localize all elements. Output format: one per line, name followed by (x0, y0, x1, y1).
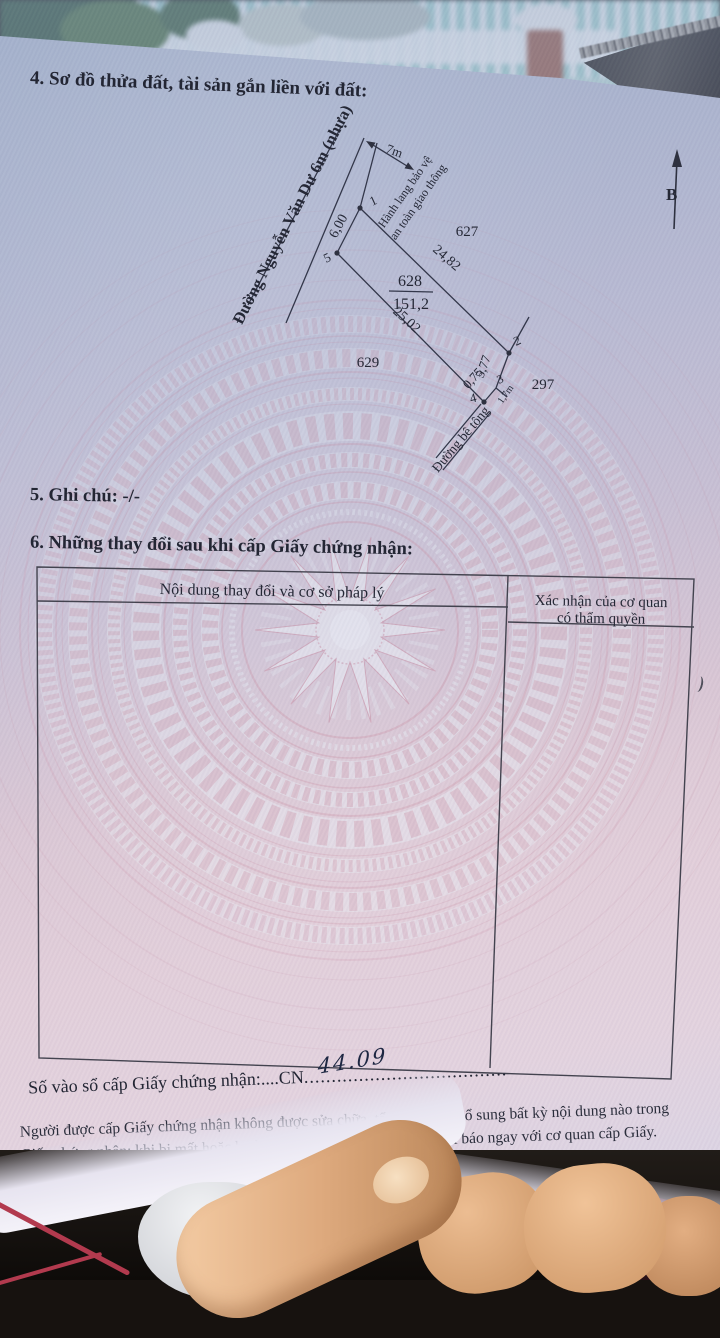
parcel-629: 629 (357, 355, 380, 371)
parcel-area: 151,2 (393, 296, 429, 313)
north-label: B (666, 185, 677, 204)
parcel-297: 297 (532, 377, 555, 393)
section5-note: 5. Ghi chú: -/- (30, 485, 140, 508)
road-concrete-label: Đường bê tông (429, 403, 493, 475)
table-col1-header: Nội dung thay đổi và cơ sở pháp lý (160, 581, 385, 602)
vertex-3: 3 (494, 371, 505, 386)
cadastral-diagram: B Đường Nguyễn Văn Dư 6m (nhựa) Hành lan… (0, 95, 720, 515)
vertex-1: 1 (367, 192, 379, 208)
edge-front-dim: 6,00 (327, 212, 352, 241)
vertex-4: 4 (468, 390, 479, 406)
changes-table: Nội dung thay đổi và cơ sở pháp lý Xác n… (0, 555, 720, 1095)
table-borders (37, 567, 694, 1079)
parcel-number: 628 (398, 273, 422, 290)
registry-code: CN (278, 1067, 304, 1088)
parcel-627: 627 (456, 224, 479, 240)
vertex-5: 5 (321, 249, 333, 265)
table-col2-header-line1: Xác nhận của cơ quan (535, 593, 669, 611)
table-col2-header-line2: có thẩm quyền (557, 610, 646, 628)
north-arrow-icon: B (666, 149, 682, 229)
edge-right-dim: 24,82 (429, 242, 463, 274)
edge-tick-dim: 1,7m (496, 383, 517, 406)
road-width-dim: 7m (384, 141, 405, 161)
